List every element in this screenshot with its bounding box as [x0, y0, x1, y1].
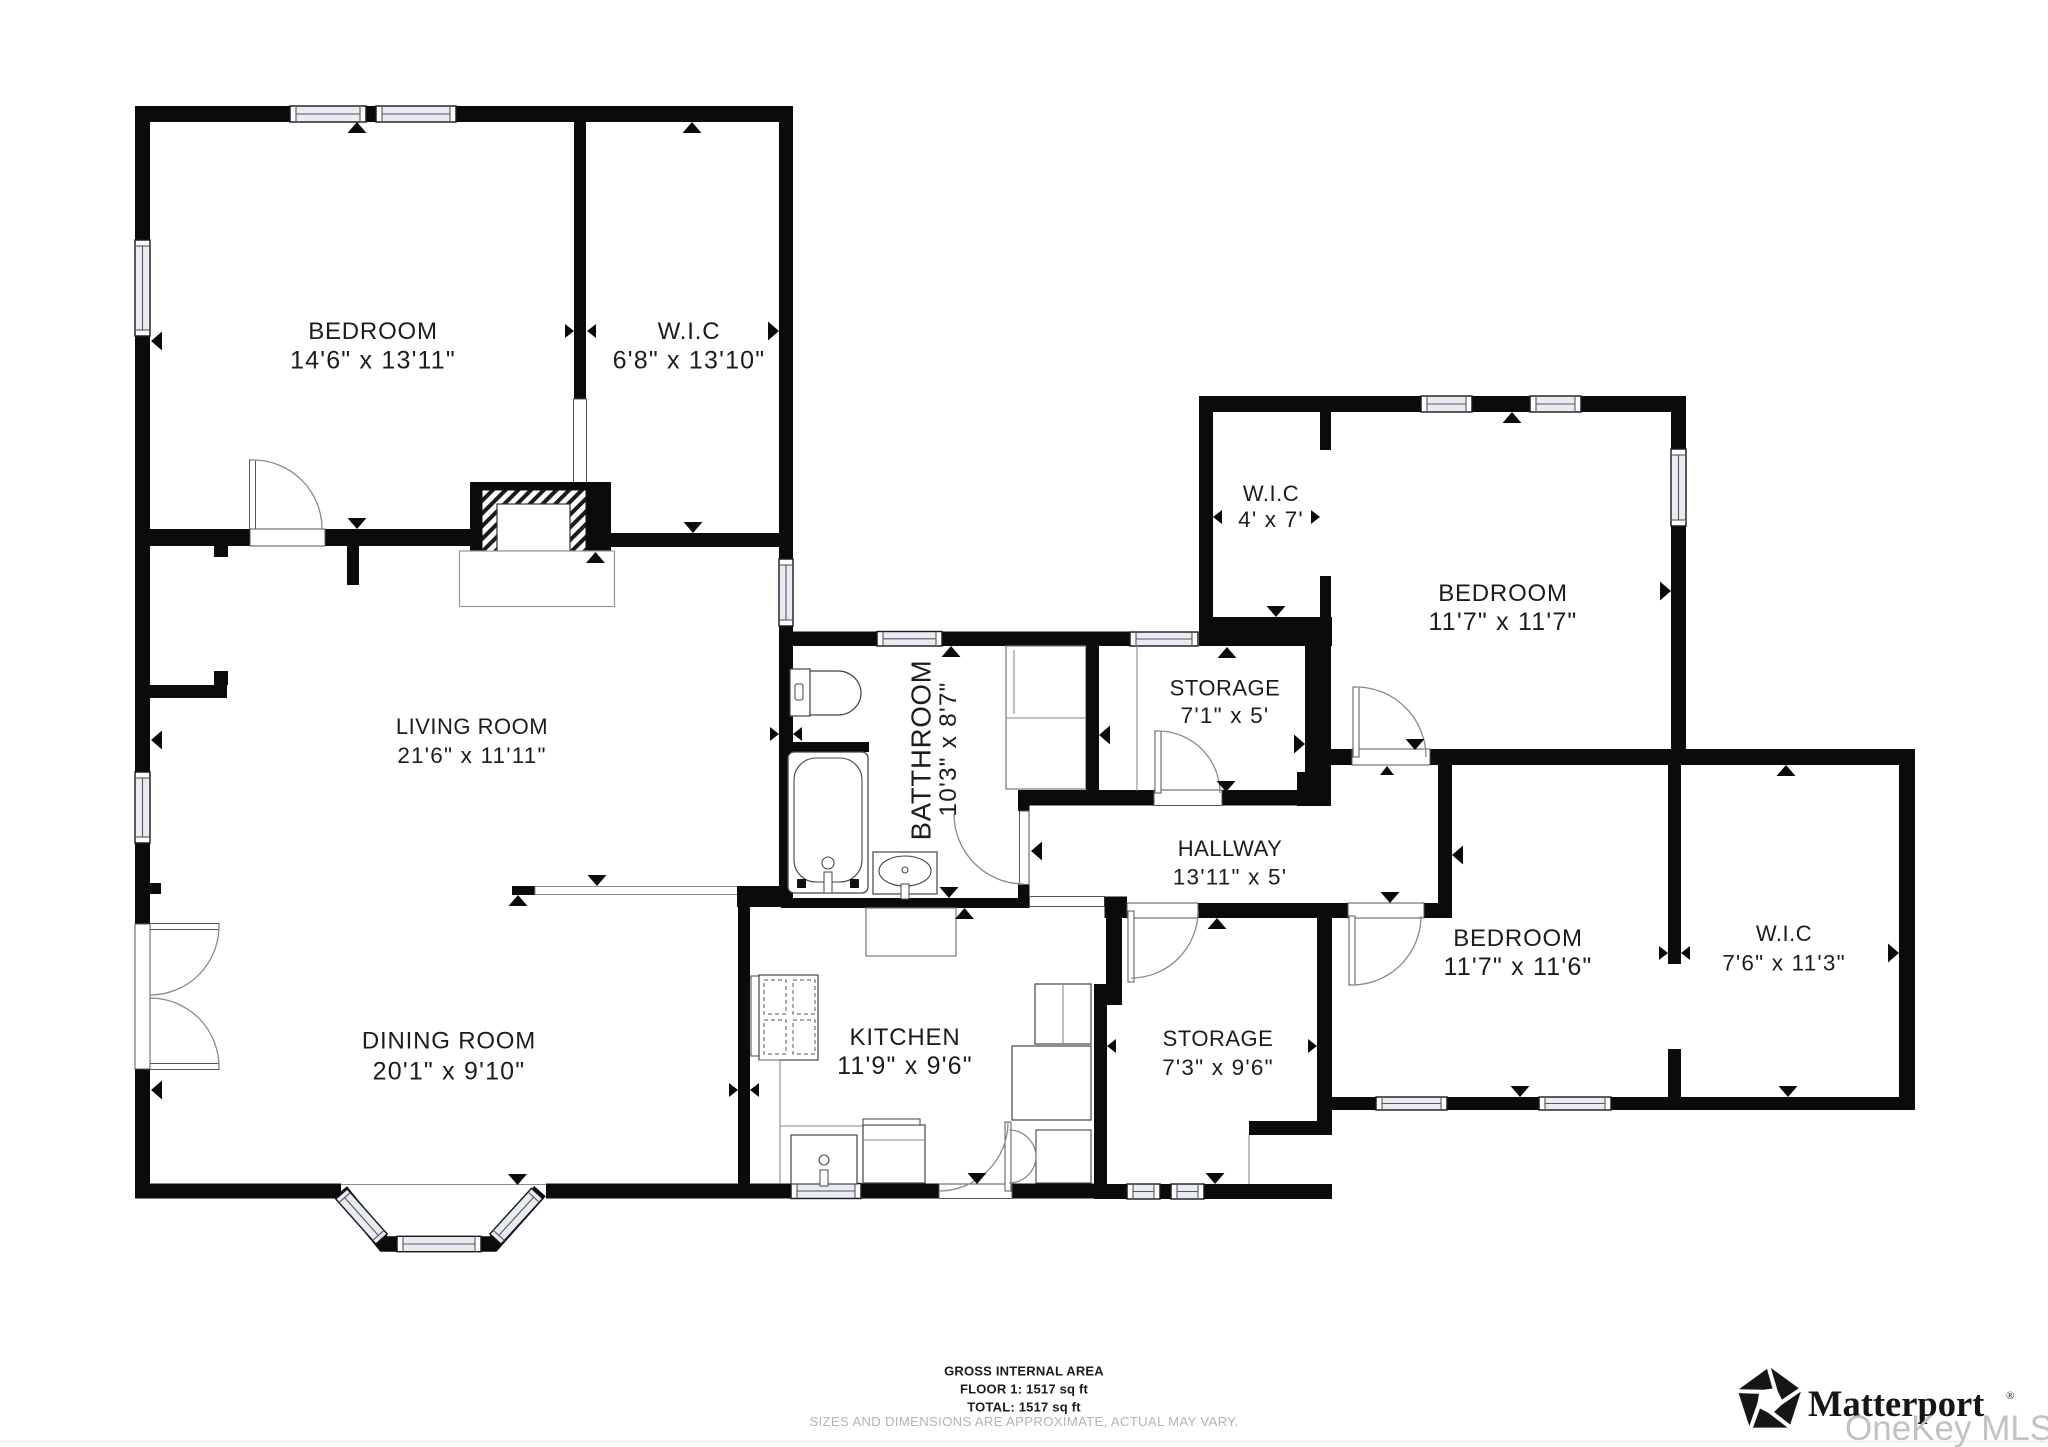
svg-text:13'11" x 5': 13'11" x 5' [1173, 865, 1287, 890]
svg-text:®: ® [2006, 1390, 2014, 1402]
svg-text:BEDROOM: BEDROOM [308, 318, 438, 345]
svg-text:21'6" x 11'11": 21'6" x 11'11" [397, 743, 546, 768]
svg-text:STORAGE: STORAGE [1163, 1026, 1274, 1051]
svg-text:BEDROOM: BEDROOM [1438, 580, 1568, 607]
svg-text:W.I.C: W.I.C [1756, 921, 1812, 946]
svg-text:10'3" x 8'7": 10'3" x 8'7" [935, 681, 962, 816]
svg-text:KITCHEN: KITCHEN [850, 1024, 961, 1051]
svg-text:7'1" x 5': 7'1" x 5' [1181, 703, 1270, 728]
svg-text:OneKey MLS: OneKey MLS [1845, 1409, 2048, 1447]
svg-text:W.I.C: W.I.C [1243, 481, 1299, 506]
svg-text:W.I.C: W.I.C [658, 318, 721, 345]
svg-text:7'6" x 11'3": 7'6" x 11'3" [1722, 951, 1846, 976]
svg-text:BATTHROOM: BATTHROOM [906, 660, 937, 841]
svg-text:11'7" x 11'6": 11'7" x 11'6" [1444, 953, 1593, 981]
svg-text:11'9" x 9'6": 11'9" x 9'6" [837, 1052, 973, 1080]
svg-text:7'3" x 9'6": 7'3" x 9'6" [1162, 1055, 1274, 1080]
svg-text:BEDROOM: BEDROOM [1453, 925, 1583, 952]
svg-text:LIVING ROOM: LIVING ROOM [396, 714, 548, 739]
svg-text:HALLWAY: HALLWAY [1178, 836, 1283, 861]
svg-text:DINING ROOM: DINING ROOM [362, 1028, 536, 1055]
svg-text:STORAGE: STORAGE [1170, 676, 1281, 701]
svg-text:TOTAL: 1517 sq ft: TOTAL: 1517 sq ft [967, 1400, 1081, 1415]
svg-text:GROSS INTERNAL AREA: GROSS INTERNAL AREA [944, 1364, 1104, 1379]
svg-text:4' x 7': 4' x 7' [1238, 507, 1304, 532]
svg-text:6'8" x 13'10": 6'8" x 13'10" [613, 347, 766, 375]
svg-text:FLOOR 1: 1517 sq ft: FLOOR 1: 1517 sq ft [960, 1382, 1089, 1397]
svg-text:14'6" x 13'11": 14'6" x 13'11" [290, 347, 456, 375]
svg-text:20'1" x 9'10": 20'1" x 9'10" [373, 1058, 526, 1086]
svg-text:SIZES AND DIMENSIONS ARE APPRO: SIZES AND DIMENSIONS ARE APPROXIMATE, AC… [809, 1414, 1238, 1429]
svg-text:11'7" x 11'7": 11'7" x 11'7" [1429, 608, 1578, 636]
